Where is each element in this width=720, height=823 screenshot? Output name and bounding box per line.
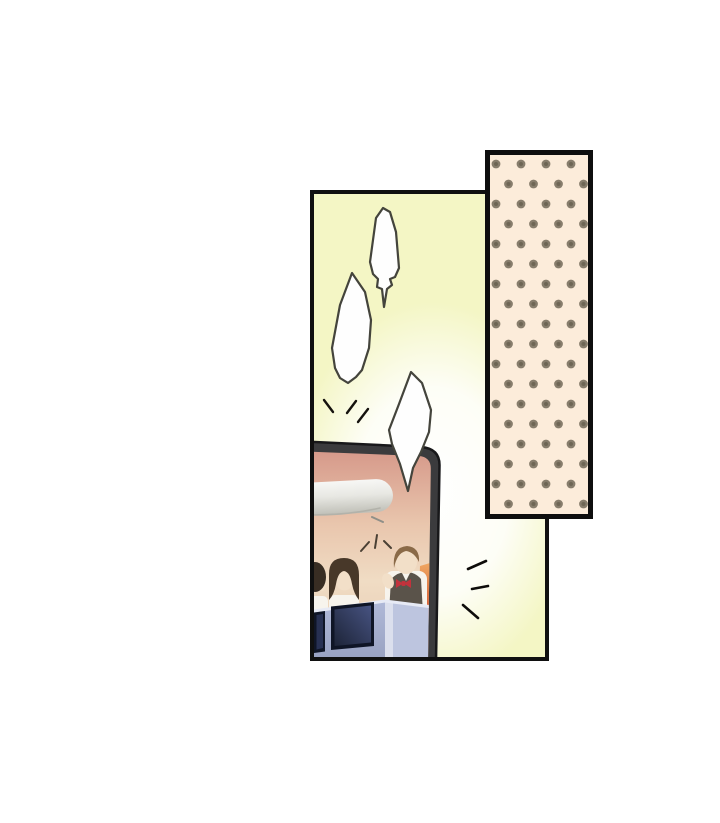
polka-dots [488, 153, 591, 517]
counter-dark-box-small [314, 611, 325, 653]
comic-page [0, 0, 720, 823]
tv-counter [300, 601, 433, 661]
comic-art [0, 0, 720, 823]
polka-dot-column [488, 153, 591, 517]
counter-dark-box-large [331, 602, 374, 650]
